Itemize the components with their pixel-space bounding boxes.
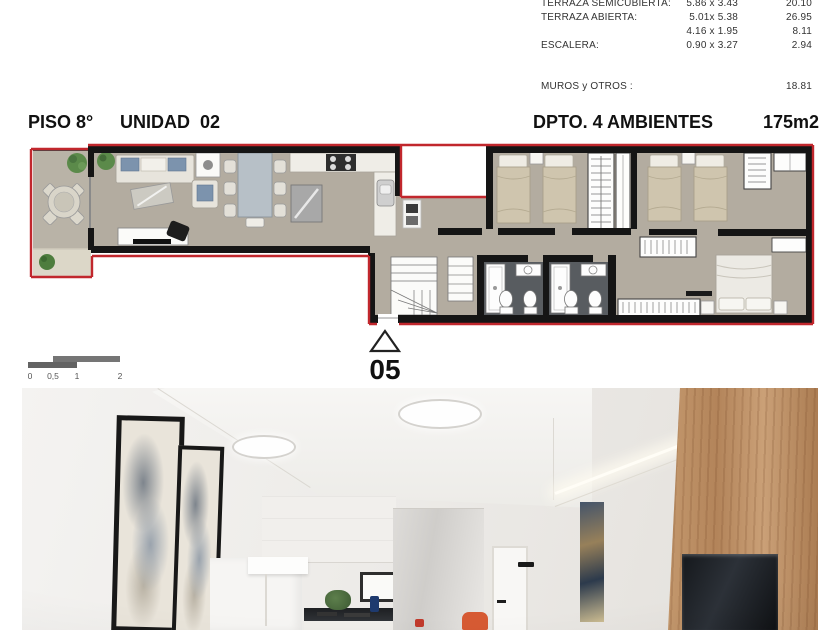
scale-bar: 0 0,5 1 2 <box>28 356 123 381</box>
unit-number: 05 <box>369 354 400 385</box>
cabinet <box>772 238 806 252</box>
scale-label: 0 <box>28 371 33 381</box>
entry-door-gap <box>378 314 398 325</box>
scale-label: 2 <box>118 371 123 381</box>
single-bed <box>543 167 576 223</box>
toilet <box>565 291 578 308</box>
listing-sheet: TERRAZA SEMICUBIERTA: 5.86 x 3.43 20.10 … <box>0 0 840 630</box>
closet <box>448 257 473 301</box>
photo-vignette <box>22 388 818 630</box>
tv-console <box>686 291 712 296</box>
scale-label: 0,5 <box>47 371 59 381</box>
dining-area <box>224 153 286 227</box>
toilet <box>500 291 513 308</box>
plant <box>97 152 115 170</box>
interior-render-photo <box>22 388 818 630</box>
bedroom-1 <box>497 152 630 233</box>
nightstand <box>701 301 714 314</box>
scale-label: 1 <box>75 371 80 381</box>
dining-table <box>238 153 272 217</box>
bidet <box>524 291 537 308</box>
nightstand <box>530 152 543 164</box>
single-bed <box>694 167 727 221</box>
plant <box>39 254 55 270</box>
entry-marker: 05 <box>369 331 400 385</box>
closet <box>640 237 696 257</box>
bidet <box>589 291 602 308</box>
bathroom-2 <box>549 262 608 315</box>
wardrobe <box>744 153 771 189</box>
bathroom-1 <box>484 262 543 315</box>
floor-plan: 05 0 0,5 1 2 <box>0 0 840 390</box>
single-bed <box>497 167 530 223</box>
single-bed <box>648 167 681 221</box>
nightstand <box>682 152 695 164</box>
tv <box>133 239 171 244</box>
nightstand <box>774 301 787 314</box>
